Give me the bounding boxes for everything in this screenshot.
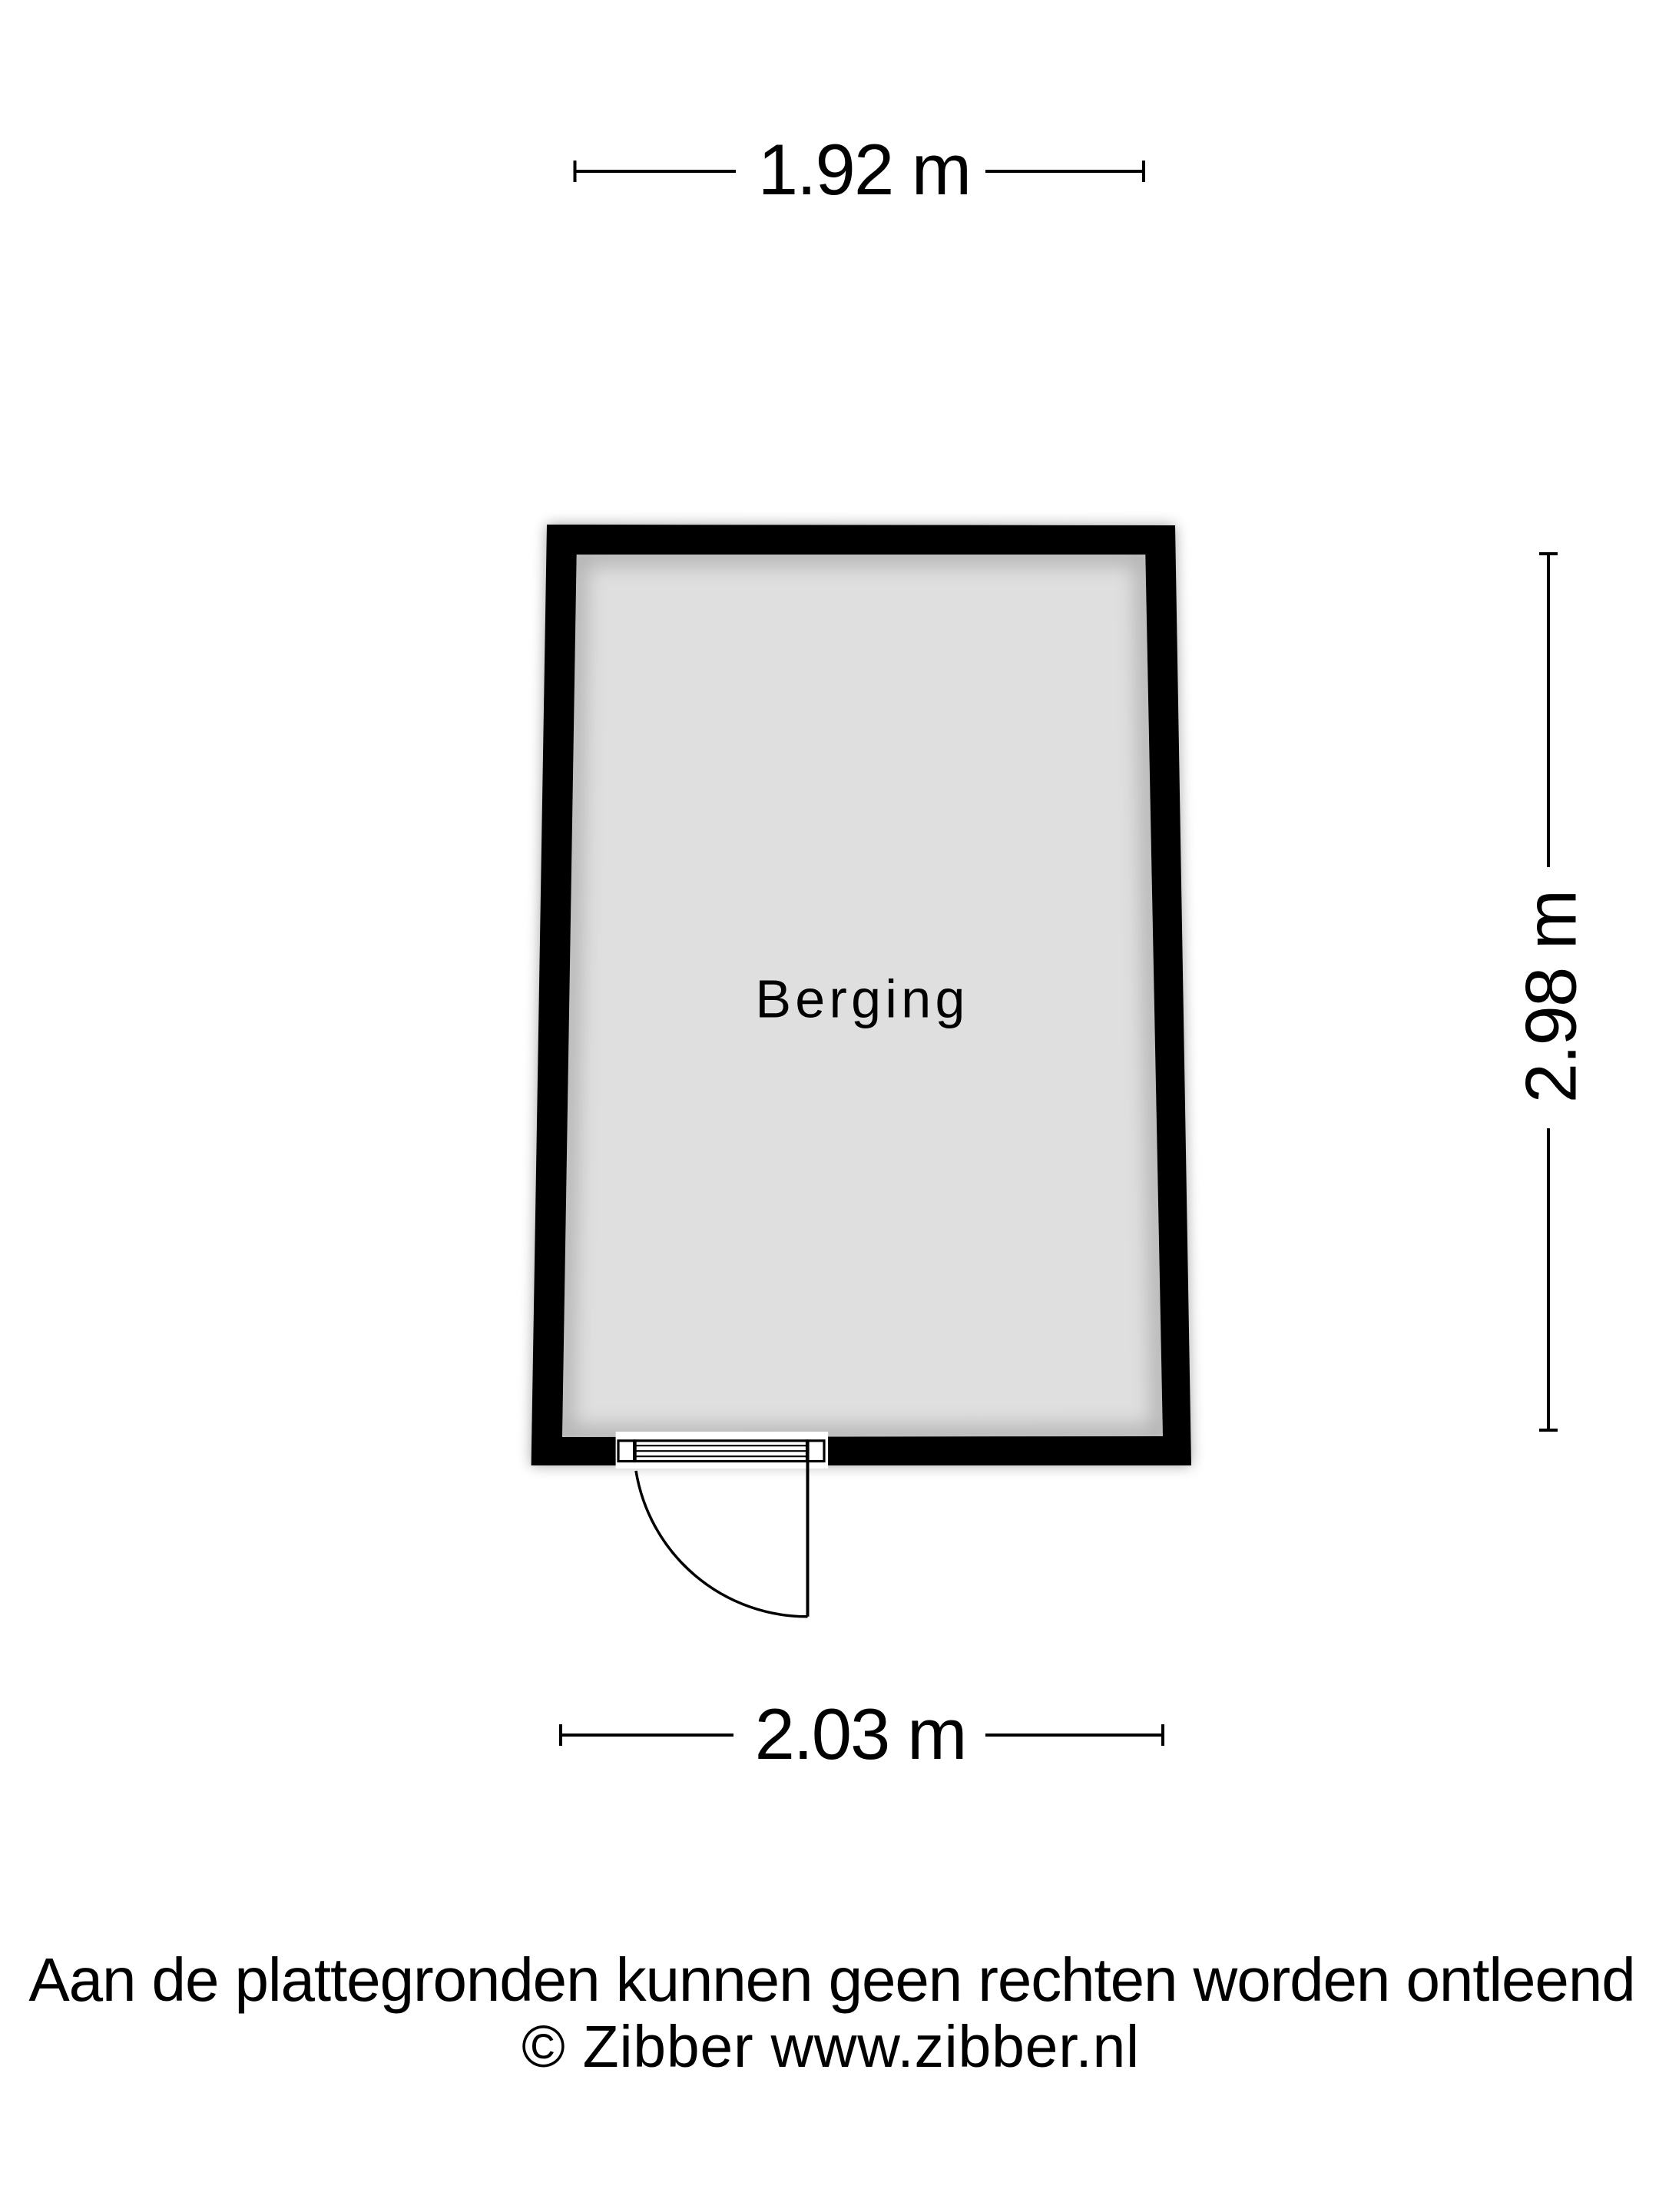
svg-text:1.92 m: 1.92 m	[758, 129, 971, 210]
svg-text:2.98 m: 2.98 m	[1511, 891, 1591, 1104]
svg-text:Berging: Berging	[755, 969, 969, 1029]
svg-text:© Zibber www.zibber.nl: © Zibber www.zibber.nl	[522, 2014, 1140, 2080]
svg-text:Aan de plattegronden kunnen ge: Aan de plattegronden kunnen geen rechten…	[28, 1945, 1634, 2014]
svg-text:2.03 m: 2.03 m	[755, 1694, 966, 1774]
